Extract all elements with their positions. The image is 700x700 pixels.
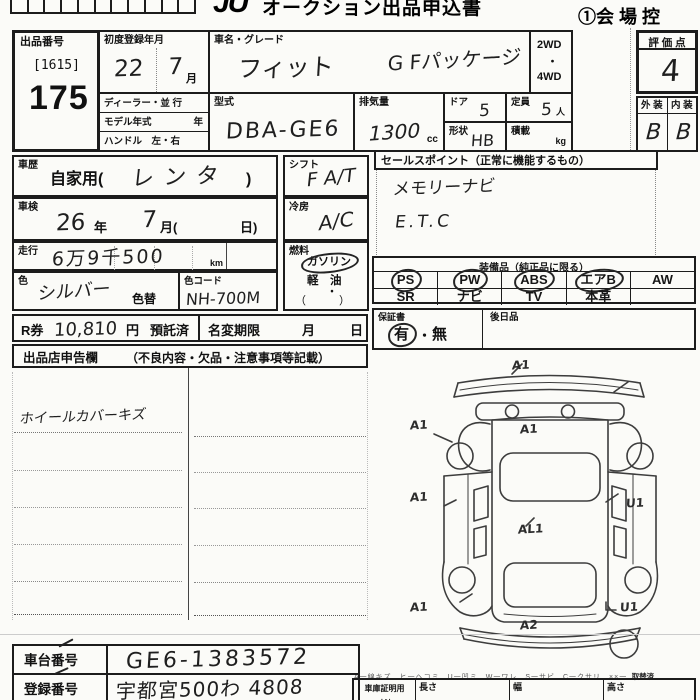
first-registration-label: 初度登録年月 <box>104 36 164 46</box>
lot-box: 出品番号 [1615] 175 <box>12 30 100 152</box>
sales-points-header: セールスポイント（正常に機能するもの） <box>374 150 658 170</box>
ju-logo: JU <box>213 0 247 20</box>
displacement-value: 1300 <box>367 120 422 144</box>
load-unit: kg <box>555 137 566 146</box>
dotted-rule <box>194 582 366 583</box>
model-year-row: モデル年式 年 <box>100 113 208 132</box>
rating-value: 4 <box>660 57 681 87</box>
height-label: 高さ <box>607 683 625 692</box>
exterior-label: 外 装 <box>641 101 663 111</box>
fuel-cell: 燃料 ガソリン 軽 油 ・ （ ） <box>283 241 369 311</box>
lot-bracket: [1615] <box>33 59 80 72</box>
damage-diagram: A1 A1 A1 A1 U1 AL1 A1 U1 A2 <box>408 356 695 668</box>
dotted-rule <box>14 544 182 545</box>
declaration-entry: ホイールカバーキズ <box>19 408 147 426</box>
rating-header: 評 価 点 <box>639 33 695 50</box>
dotted-rule <box>194 472 366 473</box>
drive-type-cell: 2WD ・ 4WD <box>529 32 571 92</box>
damage-mark: A1 <box>520 422 538 437</box>
top-code-boxes <box>10 0 196 14</box>
shape-cell: 形状 HB <box>443 121 507 152</box>
shape-label: 形状 <box>449 127 468 137</box>
inspection-label: 車検 <box>18 203 38 213</box>
model-year-unit: 年 <box>193 118 203 128</box>
recycle-ticket-label: R券 <box>21 324 43 337</box>
registration-label: 登録番号 <box>24 683 78 697</box>
code-box <box>60 0 77 12</box>
first-registration-cell: 初度登録年月 22 7 月 <box>98 30 210 94</box>
fuel-label: 燃料 <box>289 247 309 257</box>
equipment-item <box>630 289 694 305</box>
lot-label: 出品番号 <box>20 37 64 48</box>
shift-value: F A/T <box>306 167 357 191</box>
declaration-label: 出品店申告欄 <box>23 352 98 365</box>
ac-value: A/C <box>318 209 354 234</box>
dotted-rule <box>194 436 366 437</box>
sales-points-area: メモリーナビ E.T.C <box>376 170 656 257</box>
rename-deadline-cell: 名変期限 月 日 <box>198 314 368 342</box>
capacity-cell: 定員 5 人 <box>505 92 573 123</box>
dotted-rule <box>194 545 366 546</box>
color-value: シルバー <box>37 281 112 304</box>
vin-label: 車台番号 <box>24 654 78 668</box>
color-code-cell: 色コード NH-700M <box>178 271 278 311</box>
inspection-month: 7 <box>141 209 157 232</box>
drive-dot: ・ <box>547 57 558 68</box>
code-box <box>94 0 111 12</box>
sales-points-label: セールスポイント（正常に機能するもの） <box>381 156 590 167</box>
id-table: 車台番号 GE6-1383572 登録番号 宇都宮500わ 4808 <box>12 644 360 700</box>
code-box <box>27 0 44 12</box>
dotted-rule <box>194 508 366 509</box>
vehicle-name-label: 車名・グレード <box>214 36 284 46</box>
equipment-table: 装備品（純正品に限る） PS PW ABS エアB AW SR ナビ TV 本革 <box>372 256 696 304</box>
copy-label: ①会 場 控 <box>578 3 660 29</box>
dealer-label: ディーラー・並 行 <box>104 99 182 109</box>
capacity-label: 定員 <box>511 98 530 108</box>
damage-mark: AL1 <box>518 521 544 536</box>
cell-divider <box>226 243 227 269</box>
code-box <box>144 0 161 12</box>
model-type-label: 型式 <box>214 98 234 108</box>
dotted-rule <box>14 581 182 582</box>
code-box <box>161 0 178 12</box>
displacement-label: 排気量 <box>359 98 389 108</box>
equipment-item: AW <box>630 272 694 288</box>
load-cell: 積載 kg <box>505 121 573 152</box>
exterior-value: B <box>645 122 661 144</box>
drive-4wd: 4WD <box>537 72 561 83</box>
length-label: 長さ <box>419 683 437 692</box>
digit-guide <box>192 246 193 270</box>
history-cell: 車歴 自家用( レンタ ) <box>12 155 278 197</box>
warranty-label: 保証書 <box>378 313 405 322</box>
vin-row: 車台番号 GE6-1383572 <box>14 646 358 675</box>
garage-cert-table: 車庫証明用 寸法 長さ cm 幅 cm 高さ cm <box>352 678 696 700</box>
interior-value: B <box>675 122 691 144</box>
yen-unit: 円 <box>126 324 139 337</box>
registration-value: 宇都宮500わ 4808 <box>115 677 304 700</box>
code-box <box>177 0 194 12</box>
mileage-unit: km <box>210 259 223 268</box>
mileage-value: 6万9千500 <box>51 248 165 270</box>
rating-box: 評 価 点 4 <box>636 30 698 94</box>
code-box <box>77 0 94 12</box>
garage-length-cell: 長さ cm <box>416 680 510 700</box>
load-label: 積載 <box>511 127 530 137</box>
dotted-rule <box>194 615 366 616</box>
mileage-label: 走行 <box>18 247 38 257</box>
inspection-year: 26 <box>55 212 86 236</box>
declaration-header: 出品店申告欄 （不良内容・欠品・注意事項等記載） <box>12 344 368 368</box>
width-label: 幅 <box>513 683 522 692</box>
vin-value: GE6-1383572 <box>125 647 311 674</box>
capacity-value: 5 <box>540 102 552 119</box>
equipment-item: ABS <box>501 272 565 288</box>
fuel-gasoline: ガソリン <box>307 257 351 268</box>
capacity-unit: 人 <box>556 108 565 117</box>
equipment-item: PW <box>437 272 501 288</box>
code-box <box>43 0 60 12</box>
garage-height-cell: 高さ cm <box>604 680 694 700</box>
displacement-unit: cc <box>427 135 438 145</box>
first-registration-month: 7 <box>167 56 183 79</box>
handle-row: ハンドル 左・右 <box>100 132 208 151</box>
code-box <box>127 0 144 12</box>
shape-value: HB <box>470 133 494 150</box>
dotted-rule <box>14 507 182 508</box>
drive-2wd: 2WD <box>537 40 561 51</box>
color-change-label: 色替 <box>132 293 156 305</box>
cell-divider <box>667 98 668 152</box>
equipment-item: 本革 <box>566 289 630 305</box>
area-edge <box>367 372 368 620</box>
dotted-rule <box>14 470 182 471</box>
damage-mark: A1 <box>410 490 428 505</box>
later-items-label: 後日品 <box>490 313 519 323</box>
car-outline-sketch <box>408 356 693 666</box>
color-code-value: NH-700M <box>185 290 260 308</box>
inspection-day-unit: 日) <box>240 221 257 234</box>
mileage-cell: 走行 6万9千500 km <box>12 241 278 271</box>
registration-label-cell: 登録番号 <box>14 675 108 700</box>
warranty-box: 保証書 有 ・ 無 後日品 <box>372 308 696 350</box>
form-title: オークション出品申込書 <box>262 0 482 20</box>
handle-label: ハンドル 左・右 <box>104 137 180 147</box>
equipment-row: SR ナビ TV 本革 <box>374 288 694 305</box>
ac-label: 冷房 <box>289 203 309 213</box>
rename-day: 日 <box>350 324 363 337</box>
fuel-diesel: 軽 油 <box>307 276 342 288</box>
equipment-item: ナビ <box>437 289 501 305</box>
garage-label-cell: 車庫証明用 寸法 <box>354 680 416 700</box>
damage-mark: U1 <box>626 496 645 511</box>
area-center-divider <box>188 368 189 620</box>
equipment-item: SR <box>374 289 437 305</box>
lot-number: 175 <box>29 81 89 115</box>
warranty-yes: 有 <box>394 327 409 342</box>
warranty-no: 無 <box>432 327 447 342</box>
door-label: ドア <box>449 98 468 108</box>
inspection-month-unit: 月( <box>160 221 177 234</box>
equipment-row: PS PW ABS エアB AW <box>374 271 694 288</box>
model-type-value: DBA-GE6 <box>225 119 341 144</box>
dotted-rule <box>14 614 182 615</box>
recycle-ticket-cell: R券 10,810 円 預託済 <box>12 314 200 342</box>
ext-int-box: 外 装 内 装 B B <box>636 96 698 152</box>
garage-label: 車庫証明用 <box>354 683 415 694</box>
door-cell: ドア 5 <box>443 92 507 123</box>
inspection-cell: 車検 26 年 7 月( 日) <box>12 197 278 241</box>
history-label: 車歴 <box>18 161 38 171</box>
warranty-sep: ・ <box>418 329 431 342</box>
dealer-stack: ディーラー・並 行 モデル年式 年 ハンドル 左・右 <box>98 92 210 152</box>
history-printed-close: ) <box>246 172 251 188</box>
history-written: レンタ <box>131 165 230 190</box>
cell-divider <box>156 48 157 92</box>
auction-sheet: JU オークション出品申込書 ①会 場 控 出品番号 [1615] 175 初度… <box>0 0 700 700</box>
declaration-note: （不良内容・欠品・注意事項等記載） <box>126 352 330 364</box>
sales-point-line: E.T.C <box>394 214 453 232</box>
first-registration-year: 22 <box>113 58 144 82</box>
code-box <box>110 0 127 12</box>
registration-row: 登録番号 宇都宮500わ 4808 <box>14 675 358 700</box>
vehicle-name-value: フィット <box>237 55 334 81</box>
equipment-item: TV <box>501 289 565 305</box>
sales-point-line: メモリーナビ <box>392 178 496 199</box>
ac-cell: 冷房 A/C <box>283 197 369 241</box>
declaration-area: ホイールカバーキズ <box>12 368 368 626</box>
color-label: 色 <box>18 277 28 287</box>
vehicle-grade-value: G Fパッケージ <box>387 47 522 74</box>
dotted-rule <box>14 432 182 433</box>
cell-divider <box>482 310 483 348</box>
color-code-label: 色コード <box>184 277 222 287</box>
garage-width-cell: 幅 cm <box>510 680 604 700</box>
color-cell: 色 シルバー 色替 <box>12 271 180 311</box>
recycle-ticket-value: 10,810 <box>53 320 117 340</box>
model-year-label: モデル年式 <box>104 118 152 128</box>
divider <box>630 28 631 150</box>
history-printed-open: 自家用( <box>50 172 103 188</box>
code-box <box>12 0 27 12</box>
shift-cell: シフト F A/T <box>283 155 369 197</box>
equipment-item: エアB <box>566 272 630 288</box>
area-edge <box>12 372 13 620</box>
rating-label: 評 価 点 <box>648 37 685 49</box>
equipment-item: PS <box>374 272 437 288</box>
rename-deadline-label: 名変期限 <box>208 324 260 337</box>
damage-mark: A1 <box>410 418 428 433</box>
model-type-cell: 型式 DBA-GE6 <box>208 92 355 152</box>
interior-label: 内 装 <box>671 101 693 111</box>
dealer-row: ディーラー・並 行 <box>100 94 208 113</box>
divider <box>0 634 700 635</box>
month-unit: 月 <box>186 74 197 85</box>
door-value: 5 <box>478 103 490 120</box>
fuel-paren: （ ） <box>295 296 350 307</box>
damage-mark: A1 <box>410 600 428 615</box>
rename-month: 月 <box>302 324 315 337</box>
damage-mark: U1 <box>620 600 639 615</box>
vehicle-name-cell: 車名・グレード フィット G Fパッケージ 2WD ・ 4WD <box>208 30 573 94</box>
damage-mark: A1 <box>512 358 530 373</box>
inspection-year-unit: 年 <box>94 221 107 234</box>
displacement-cell: 排気量 1300 cc <box>353 92 445 152</box>
damage-mark: A2 <box>520 618 538 633</box>
deposit-status: 預託済 <box>150 324 189 337</box>
